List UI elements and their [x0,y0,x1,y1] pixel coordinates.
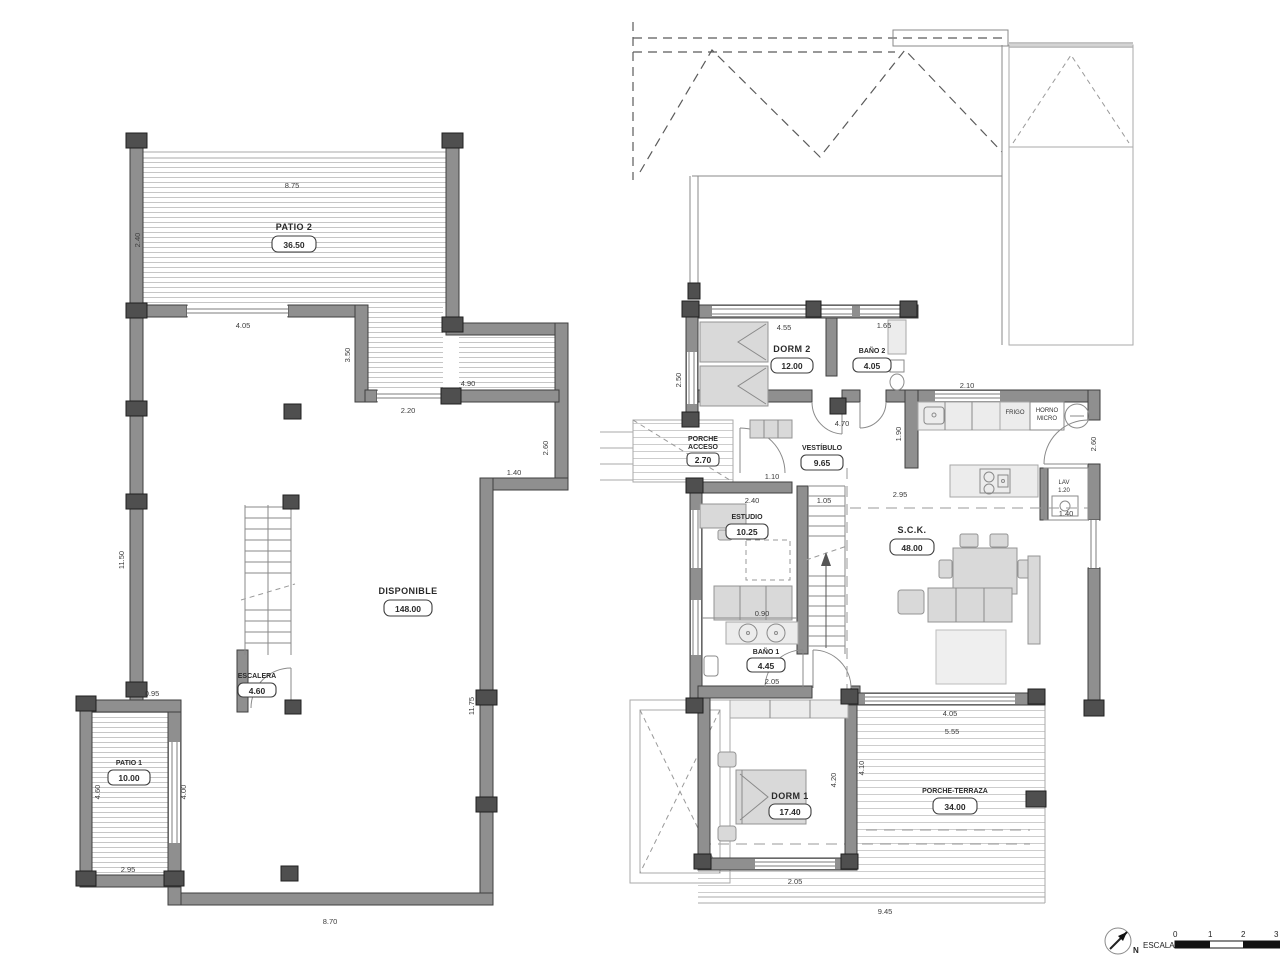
room-area: 36.50 [283,240,305,250]
room-name: PORCHE-TERRAZA [922,788,988,795]
dim-right-step: 1.40 [507,468,522,477]
laundry-dim: 1.20 [1058,488,1070,494]
room-area: 9.65 [814,458,831,468]
room-area: 10.25 [736,527,758,537]
floor-plan-sheet: 8.75 2.40 4.05 3.50 4.90 2.20 2.60 1.40 … [0,0,1280,960]
dorm1-furniture [718,700,848,841]
dorm2-beds [700,322,768,406]
living-dining [898,534,1040,684]
kitchen-counter [918,402,1000,430]
dorm1-door-arc [813,650,851,688]
room-label-patio2: PATIO 2 36.50 [272,222,316,252]
sofa-icon [714,586,792,620]
dim-patio1-left: 4.60 [93,785,102,800]
room-area: 17.40 [779,807,801,817]
room-name-line2: ACCESO [688,444,719,451]
room-name: BAÑO 2 [859,346,886,355]
dim-hall-b: 2.40 [745,496,760,505]
dim-dorm1-window: 2.05 [788,877,803,886]
dim-dorm1-height: 4.20 [829,773,838,788]
room-area: 4.45 [758,661,775,671]
dim-kitchen-pass: 1.90 [894,427,903,442]
room-area: 34.00 [944,802,966,812]
roof-truss-dashed [640,50,1002,172]
scale-tick-3: 3 [1274,930,1279,939]
dim-hall-c: 1.05 [817,496,832,505]
room-name: DORM 2 [773,344,810,354]
dim-top-window: 4.05 [236,321,251,330]
room-area: 48.00 [901,543,923,553]
room-label-disponible: DISPONIBLE 148.00 [378,586,437,616]
kitchen-island [950,465,1038,497]
dim-left-side: 11.50 [117,551,126,569]
dim-sck-bottom-a: 4.05 [943,709,958,718]
sink-icon [890,360,904,372]
room-label-bano1: BAÑO 1 4.45 [747,647,785,672]
room-area: 12.00 [781,361,803,371]
room-name: S.C.K. [898,525,927,535]
room-label-vestibulo: VESTÍBULO 9.65 [801,443,843,470]
tv-unit-icon [1028,556,1040,644]
bed-icon [700,366,768,406]
rug-icon [936,630,1006,684]
carport-roof-dashed [1013,55,1129,143]
room-name: DISPONIBLE [378,586,437,596]
dim-bottom: 8.70 [323,917,338,926]
floor-plan-canvas: 8.75 2.40 4.05 3.50 4.90 2.20 2.60 1.40 … [0,0,1280,960]
north-arrow-icon: N [1105,928,1139,955]
dim-upper-right: 4.90 [461,379,476,388]
chair-icon [939,560,952,578]
patio1-hatch [92,712,168,875]
nightstand-icon [718,826,736,841]
dim-sck-bottom-b: 5.55 [945,727,960,736]
vanity-counter [726,622,798,644]
estudio-furniture [700,504,792,620]
nightstand-icon [718,752,736,767]
dim-sink-counter: 0.90 [755,609,770,618]
closet-icon [730,700,848,718]
oven-label-1: HORNO [1036,408,1059,414]
scale-bar: ESCALA : 0 1 2 3 [1143,930,1280,950]
dim-hall-a: 1.10 [765,472,780,481]
bath2-fixtures [888,320,906,390]
room-label-estudio: ESTUDIO 10.25 [726,514,768,539]
dim-kitchen-window: 2.10 [960,381,975,390]
dim-patio1-right: 4.00 [179,785,188,800]
bed-icon [700,322,768,362]
dim-dorm2-window: 4.55 [777,323,792,332]
dim-laundry-width: 1.40 [1059,509,1074,518]
dim-living-width: 2.95 [893,490,908,499]
dining-table-icon [953,548,1017,594]
left-plan: 8.75 2.40 4.05 3.50 4.90 2.20 2.60 1.40 … [76,133,568,926]
room-label-dorm1: DORM 1 17.40 [769,791,811,819]
dim-left-window: 2.50 [674,373,683,388]
dim-patio1-bottom: 2.95 [121,865,136,874]
sofa-icon [928,588,1012,622]
dim-patio1-top: 0.95 [145,689,160,698]
room-label-escalera: ESCALERA 4.60 [238,673,277,697]
carport-outline [1009,45,1133,345]
scale-tick-2: 2 [1241,930,1246,939]
dim-inner-wall: 3.50 [343,348,352,363]
toilet-icon [704,656,718,676]
dim-entry-door: 2.60 [1089,437,1098,452]
kitchen-terrace-door-arc [1044,420,1088,464]
room-name: BAÑO 1 [753,647,780,656]
dim-left-top: 2.40 [133,233,142,248]
room-area: 2.70 [695,455,712,465]
room-area: 10.00 [118,773,140,783]
room-name: ESTUDIO [731,514,763,521]
hall-wardrobe-icon [750,420,792,438]
scale-label: ESCALA : [1143,941,1179,950]
dim-mid-window: 2.20 [401,406,416,415]
oven-label-2: MICRO [1037,416,1057,422]
room-label-sck: S.C.K. 48.00 [890,525,934,555]
room-label-bano2: BAÑO 2 4.05 [853,346,891,372]
room-name: PATIO 1 [116,760,142,767]
room-name: PATIO 2 [276,222,312,232]
armchair-icon [898,590,924,614]
stairs-main-icon [806,486,847,654]
room-area: 4.05 [864,361,881,371]
dim-closet: 2.05 [765,677,780,686]
stair-direction-arrow [821,552,831,566]
room-name: DORM 1 [771,791,808,801]
fridge-label: FRIGO [1006,410,1025,416]
future-furniture-dashed [746,540,790,580]
room-area: 4.60 [249,686,266,696]
room-name-line1: PORCHE [688,436,718,443]
dim-right-upper: 2.60 [541,441,550,456]
right-plan: FRIGO HORNO MICRO LAV 1.20 [600,22,1133,916]
room-name: VESTÍBULO [802,443,843,452]
dim-terrace-left: 4.10 [857,761,866,776]
scale-tick-0: 0 [1173,930,1178,939]
room-label-dorm2: DORM 2 12.00 [771,344,813,373]
dim-vestibulo-width: 4.70 [835,419,850,428]
dim-right-side: 11.75 [467,697,476,715]
toilet-icon [890,374,904,390]
flat-roof-x [630,700,730,883]
north-label: N [1133,946,1139,955]
room-name: ESCALERA [238,673,277,680]
title-block: N ESCALA : 0 1 2 3 [1105,928,1280,955]
fridge-icon [1000,402,1030,430]
scale-tick-1: 1 [1208,930,1213,939]
chair-icon [960,534,978,547]
laundry-label: LAV [1059,480,1070,486]
room-area: 148.00 [395,604,421,614]
chair-icon [990,534,1008,547]
dim-bano2-window: 1.65 [877,321,892,330]
roof-outline [633,22,1133,345]
patio2-hatch-mid [368,305,443,390]
dim-terrace-bottom: 9.45 [878,907,893,916]
dim-top: 8.75 [285,181,300,190]
